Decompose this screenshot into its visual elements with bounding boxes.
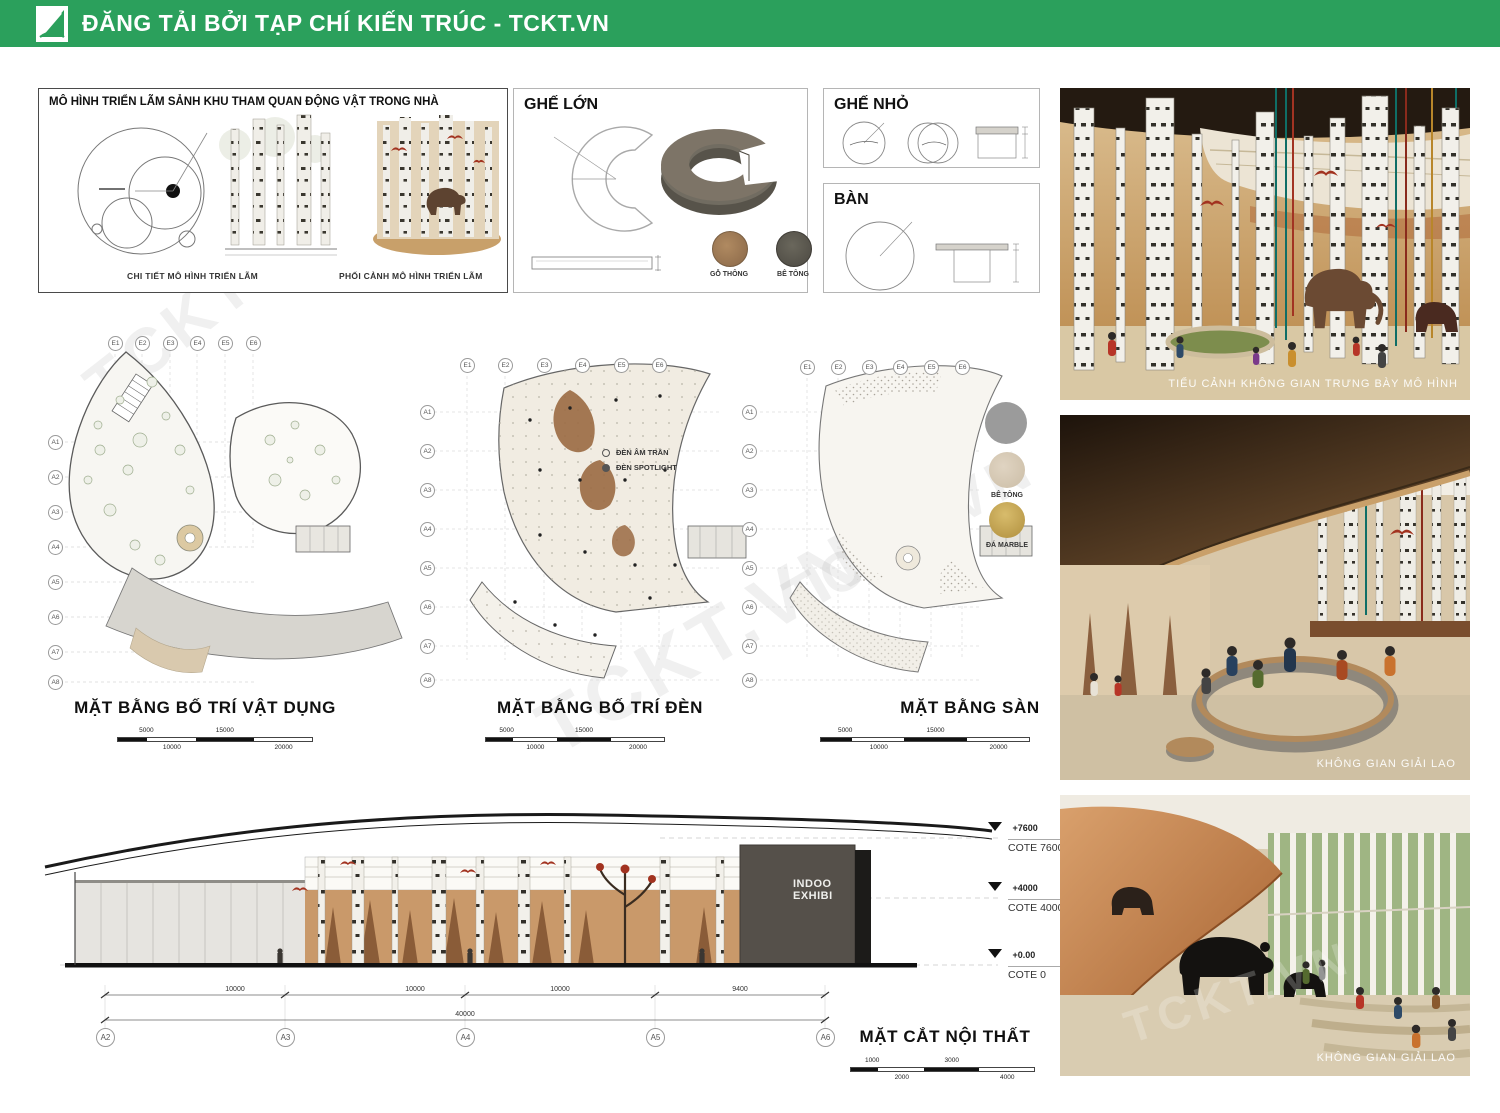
grid-bubble: A5: [48, 575, 63, 590]
grid-bubble: E1: [800, 360, 815, 375]
section-scalebar: 1000 3000 2000 4000: [850, 1056, 1035, 1082]
dim-label: 9400: [705, 986, 775, 993]
grid-bubble: E1: [108, 336, 123, 351]
grid-bubble: A3: [420, 483, 435, 498]
grid-bubble: A4: [48, 540, 63, 555]
plan2-scalebar: 5000 15000 10000 20000: [485, 726, 665, 752]
grid-bubble: A8: [742, 673, 757, 688]
table-title: BÀN: [834, 191, 869, 209]
grid-bubble: A1: [420, 405, 435, 420]
grid-bubble: E6: [955, 360, 970, 375]
plan-furniture-drawing: [40, 330, 420, 695]
grid-bubble: E4: [575, 358, 590, 373]
small-seat-box: GHẾ NHỎ: [823, 88, 1040, 168]
small-seat-title: GHẾ NHỎ: [834, 96, 909, 114]
render3-image: [1060, 795, 1470, 1076]
concrete-label: BÊ TÔNG: [777, 271, 809, 278]
render2-caption: KHÔNG GIAN GIẢI LAO: [1317, 758, 1456, 770]
render3-caption: KHÔNG GIAN GIẢI LAO: [1317, 1052, 1456, 1064]
dim-total-label: 40000: [430, 1011, 500, 1018]
floor-material-label: BÊ TÔNG: [991, 492, 1023, 499]
render1-image: [1060, 88, 1470, 400]
model-detail-caption: CHI TIẾT MÔ HÌNH TRIỂN LÃM: [127, 271, 258, 281]
grid-bubble: A3: [48, 505, 63, 520]
render-lounge-space: KHÔNG GIAN GIẢI LAO: [1060, 415, 1470, 780]
small-seat-drawing: [824, 115, 1039, 167]
grid-bubble: A3: [276, 1028, 295, 1047]
floor-material-swatch-marble: [989, 502, 1025, 538]
large-seat-drawing: [514, 89, 807, 292]
plan-floor-finish: E1 E2 E3 E4 E5 E6 A1 A2 A3 A4 A5 A6 A7 A…: [740, 330, 1052, 760]
section-wall-text: INDOO EXHIBI: [793, 878, 833, 902]
grid-bubble: E2: [135, 336, 150, 351]
plan-lighting-layout: E1 E2 E3 E4 E5 E6 A1 A2 A3 A4 A5 A6 A7 A…: [420, 330, 790, 760]
header-bar: ĐĂNG TẢI BỞI TẠP CHÍ KIẾN TRÚC - TCKT.VN: [0, 0, 1500, 47]
section-title: MẶT CẮT NỘI THẤT: [845, 1027, 1045, 1047]
dim-label: 10000: [525, 986, 595, 993]
plan1-title: MẶT BẰNG BỐ TRÍ VẬT DỤNG: [40, 698, 370, 718]
model-perspective-caption: PHỐI CẢNH MÔ HÌNH TRIỂN LÃM: [339, 271, 483, 281]
legend-label: ĐÈN ÂM TRẦN: [616, 448, 669, 457]
grid-bubble: A6: [742, 600, 757, 615]
grid-bubble: A1: [48, 435, 63, 450]
level-marker-icon: [988, 949, 1002, 958]
tckt-logo-icon: [36, 6, 68, 42]
level-marker-icon: [988, 822, 1002, 831]
grid-bubble: E4: [190, 336, 205, 351]
plan3-title: MẶT BẰNG SÀN: [850, 698, 1090, 718]
grid-bubble: E3: [163, 336, 178, 351]
grid-bubble: A2: [96, 1028, 115, 1047]
grid-bubble: A6: [420, 600, 435, 615]
dim-label: 10000: [380, 986, 450, 993]
recessed-light-icon: [602, 449, 610, 457]
grid-bubble: A7: [742, 639, 757, 654]
table-box: BÀN: [823, 183, 1040, 293]
legend-label: ĐÈN SPOTLIGHT: [616, 463, 677, 472]
grid-bubble: A2: [742, 444, 757, 459]
grid-bubble: A2: [48, 470, 63, 485]
plan-lighting-drawing: [420, 330, 790, 695]
dim-label: 10000: [200, 986, 270, 993]
floor-material-swatch-gray: [985, 402, 1027, 444]
grid-bubble: E4: [893, 360, 908, 375]
grid-bubble: E6: [652, 358, 667, 373]
plan1-scalebar: 5000 15000 10000 20000: [117, 726, 313, 752]
grid-bubble: E6: [246, 336, 261, 351]
render2-image: [1060, 415, 1470, 780]
level-marker-icon: [988, 882, 1002, 891]
plan3-scalebar: 5000 15000 10000 20000: [820, 726, 1030, 752]
grid-bubble: A5: [646, 1028, 665, 1047]
grid-bubble: A4: [456, 1028, 475, 1047]
grid-bubble: A5: [420, 561, 435, 576]
model-detail-drawing: [39, 111, 507, 269]
grid-bubble: A6: [48, 610, 63, 625]
render-rest-space: TCKT.VN KHÔNG GIAN GIẢI LAO: [1060, 795, 1470, 1076]
grid-bubble: A2: [420, 444, 435, 459]
large-seat-box: GHẾ LỚN GỖ THÔNG BÊ TÔNG: [513, 88, 808, 293]
grid-bubble: A8: [420, 673, 435, 688]
model-box-title: MÔ HÌNH TRIỂN LÃM SẢNH KHU THAM QUAN ĐỘN…: [49, 96, 439, 108]
grid-bubble: E5: [218, 336, 233, 351]
grid-bubble: E5: [924, 360, 939, 375]
table-drawing: [824, 210, 1039, 292]
render-exhibit-space: TIỂU CẢNH KHÔNG GIAN TRƯNG BÀY MÔ HÌNH: [1060, 88, 1470, 400]
grid-bubble: A6: [816, 1028, 835, 1047]
header-title: ĐĂNG TẢI BỞI TẠP CHÍ KIẾN TRÚC - TCKT.VN: [82, 10, 609, 37]
plan2-title: MẶT BẰNG BỐ TRÍ ĐÈN: [480, 698, 720, 718]
presentation-board: ĐĂNG TẢI BỞI TẠP CHÍ KIẾN TRÚC - TCKT.VN…: [0, 0, 1500, 1113]
grid-bubble: A7: [420, 639, 435, 654]
grid-bubble: E5: [614, 358, 629, 373]
pine-wood-label: GỖ THÔNG: [710, 271, 748, 278]
grid-bubble: A5: [742, 561, 757, 576]
pine-wood-swatch: [712, 231, 748, 267]
render1-caption: TIỂU CẢNH KHÔNG GIAN TRƯNG BÀY MÔ HÌNH: [1168, 378, 1458, 390]
grid-bubble: E1: [460, 358, 475, 373]
grid-bubble: A7: [48, 645, 63, 660]
section-drawing: [40, 795, 1000, 975]
plan-furniture-layout: E1 E2 E3 E4 E5 E6 A1 A2 A3 A4 A5 A6 A7 A…: [40, 330, 420, 760]
concrete-swatch: [776, 231, 812, 267]
grid-bubble: E3: [862, 360, 877, 375]
grid-bubble: E2: [498, 358, 513, 373]
grid-bubble: A4: [420, 522, 435, 537]
model-box: MÔ HÌNH TRIỂN LÃM SẢNH KHU THAM QUAN ĐỘN…: [38, 88, 508, 293]
grid-bubble: A4: [742, 522, 757, 537]
spotlight-icon: [602, 464, 610, 472]
floor-material-swatch-concrete: [989, 452, 1025, 488]
grid-bubble: E3: [537, 358, 552, 373]
floor-material-label: ĐÁ MARBLE: [986, 542, 1028, 549]
grid-bubble: A1: [742, 405, 757, 420]
grid-bubble: A3: [742, 483, 757, 498]
lighting-legend: ĐÈN ÂM TRẦN ĐÈN SPOTLIGHT: [602, 448, 677, 478]
grid-bubble: E2: [831, 360, 846, 375]
grid-bubble: A8: [48, 675, 63, 690]
